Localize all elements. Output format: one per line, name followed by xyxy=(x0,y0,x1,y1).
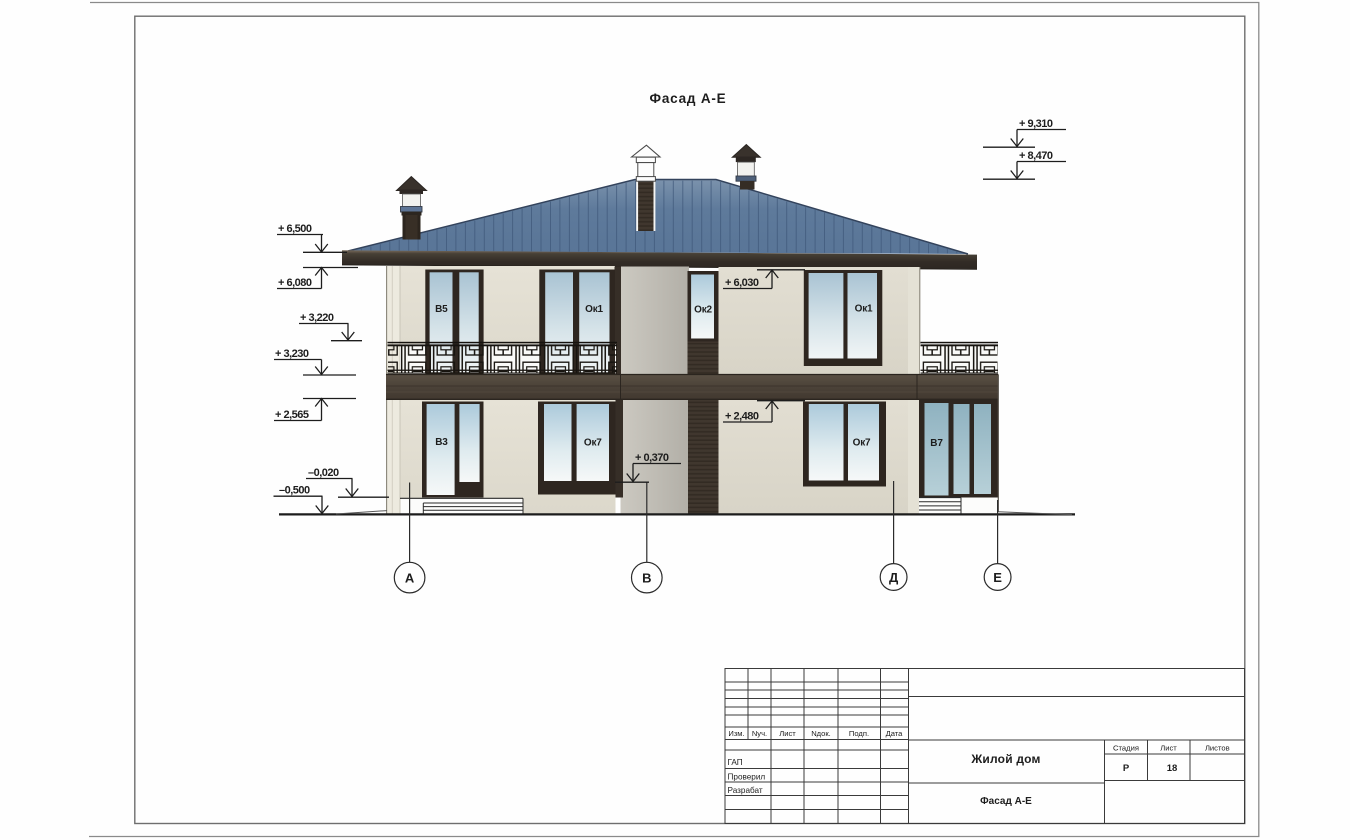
svg-text:В5: В5 xyxy=(435,304,448,315)
svg-text:Лист: Лист xyxy=(1160,744,1177,753)
svg-text:Лист: Лист xyxy=(779,729,796,738)
svg-text:+ 0,370: + 0,370 xyxy=(635,452,669,464)
svg-text:В: В xyxy=(642,571,651,586)
svg-text:+ 6,500: + 6,500 xyxy=(278,223,312,235)
svg-text:Проверил: Проверил xyxy=(728,773,766,782)
svg-text:Д: Д xyxy=(889,570,899,585)
svg-text:Изм.: Изм. xyxy=(728,729,744,738)
svg-text:Ок1: Ок1 xyxy=(855,304,873,315)
svg-text:Ок7: Ок7 xyxy=(853,438,871,449)
svg-text:Фасад А-Е: Фасад А-Е xyxy=(650,91,727,106)
svg-text:Р: Р xyxy=(1123,763,1130,774)
svg-text:+ 3,230: + 3,230 xyxy=(275,348,309,360)
svg-text:+ 9,310: + 9,310 xyxy=(1019,118,1053,130)
svg-text:Стадия: Стадия xyxy=(1113,744,1139,753)
svg-text:+ 6,030: + 6,030 xyxy=(725,277,759,289)
svg-text:–0,500: –0,500 xyxy=(279,485,310,497)
svg-text:+ 8,470: + 8,470 xyxy=(1019,150,1053,162)
svg-text:Nуч.: Nуч. xyxy=(752,729,767,738)
svg-text:Разрабат: Разрабат xyxy=(728,786,763,795)
svg-text:ГАП: ГАП xyxy=(728,758,743,767)
svg-text:Ок1: Ок1 xyxy=(585,304,603,315)
svg-text:В7: В7 xyxy=(930,438,943,449)
svg-text:Дата: Дата xyxy=(886,729,904,738)
svg-text:+ 2,480: + 2,480 xyxy=(725,411,759,423)
svg-text:+ 6,080: + 6,080 xyxy=(278,277,312,289)
svg-text:В3: В3 xyxy=(435,437,448,448)
svg-text:Ок2: Ок2 xyxy=(694,304,712,315)
svg-text:Е: Е xyxy=(993,570,1002,585)
svg-text:Листов: Листов xyxy=(1205,744,1230,753)
svg-text:+ 2,565: + 2,565 xyxy=(275,409,309,421)
svg-text:Подп.: Подп. xyxy=(849,729,869,738)
svg-text:+ 3,220: + 3,220 xyxy=(300,312,334,324)
svg-text:Nдок.: Nдок. xyxy=(811,729,831,738)
svg-text:Ок7: Ок7 xyxy=(584,438,602,449)
svg-text:Фасад А-Е: Фасад А-Е xyxy=(980,796,1032,807)
svg-text:–0,020: –0,020 xyxy=(308,467,339,479)
svg-text:А: А xyxy=(405,571,415,586)
svg-text:18: 18 xyxy=(1167,763,1178,774)
svg-text:Жилой дом: Жилой дом xyxy=(970,752,1040,766)
